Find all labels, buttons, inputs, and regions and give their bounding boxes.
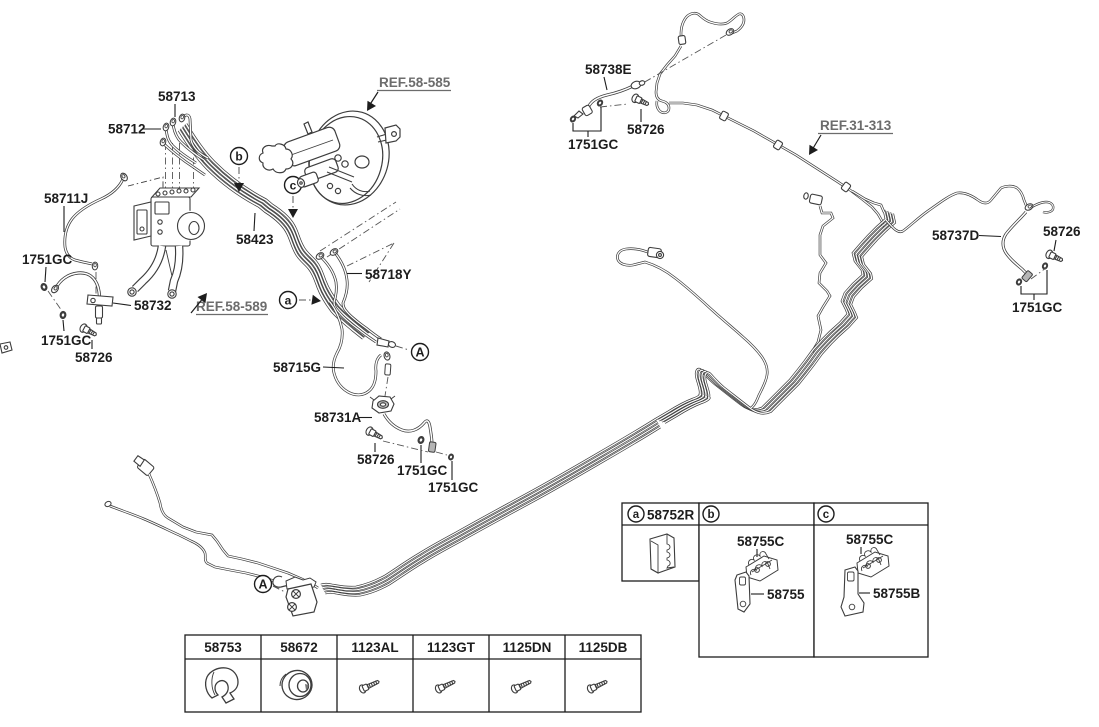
svg-text:REF.31-313: REF.31-313 (820, 118, 892, 133)
svg-text:1123GT: 1123GT (427, 640, 476, 655)
svg-text:58755C: 58755C (737, 534, 785, 549)
svg-text:58737D: 58737D (932, 228, 980, 243)
svg-text:1125DN: 1125DN (503, 640, 552, 655)
svg-text:REF.58-585: REF.58-585 (379, 75, 451, 90)
svg-text:A: A (258, 578, 267, 592)
svg-text:c: c (823, 509, 830, 521)
svg-text:c: c (290, 178, 297, 192)
svg-text:58423: 58423 (236, 232, 274, 247)
svg-text:b: b (707, 509, 714, 521)
svg-text:58726: 58726 (1043, 224, 1081, 239)
svg-text:1751GC: 1751GC (1012, 300, 1063, 315)
svg-text:58715G: 58715G (273, 360, 321, 375)
svg-text:REF.58-589: REF.58-589 (196, 299, 267, 314)
svg-text:1751GC: 1751GC (397, 463, 448, 478)
svg-text:58732: 58732 (134, 298, 172, 313)
svg-text:58711J: 58711J (44, 191, 88, 206)
svg-text:58752R: 58752R (647, 508, 695, 523)
svg-text:58726: 58726 (627, 122, 665, 137)
svg-text:1751GC: 1751GC (41, 333, 92, 348)
svg-text:1125DB: 1125DB (579, 640, 628, 655)
svg-text:58672: 58672 (280, 640, 318, 655)
svg-text:1123AL: 1123AL (351, 640, 398, 655)
svg-text:a: a (633, 509, 640, 521)
svg-text:58712: 58712 (108, 122, 146, 137)
svg-text:A: A (415, 346, 424, 360)
svg-text:58718Y: 58718Y (365, 267, 412, 282)
svg-text:58738E: 58738E (585, 62, 632, 77)
svg-text:1751GC: 1751GC (22, 252, 73, 267)
svg-text:58726: 58726 (75, 350, 113, 365)
svg-text:58753: 58753 (204, 640, 242, 655)
svg-text:a: a (285, 293, 292, 307)
svg-text:58726: 58726 (357, 452, 395, 467)
svg-text:58713: 58713 (158, 89, 196, 104)
svg-text:1751GC: 1751GC (568, 137, 619, 152)
svg-text:1751GC: 1751GC (428, 480, 479, 495)
svg-text:58731A: 58731A (314, 410, 362, 425)
svg-text:58755C: 58755C (846, 532, 894, 547)
svg-text:58755B: 58755B (873, 586, 921, 601)
svg-text:58755: 58755 (767, 587, 805, 602)
svg-text:b: b (235, 149, 242, 163)
